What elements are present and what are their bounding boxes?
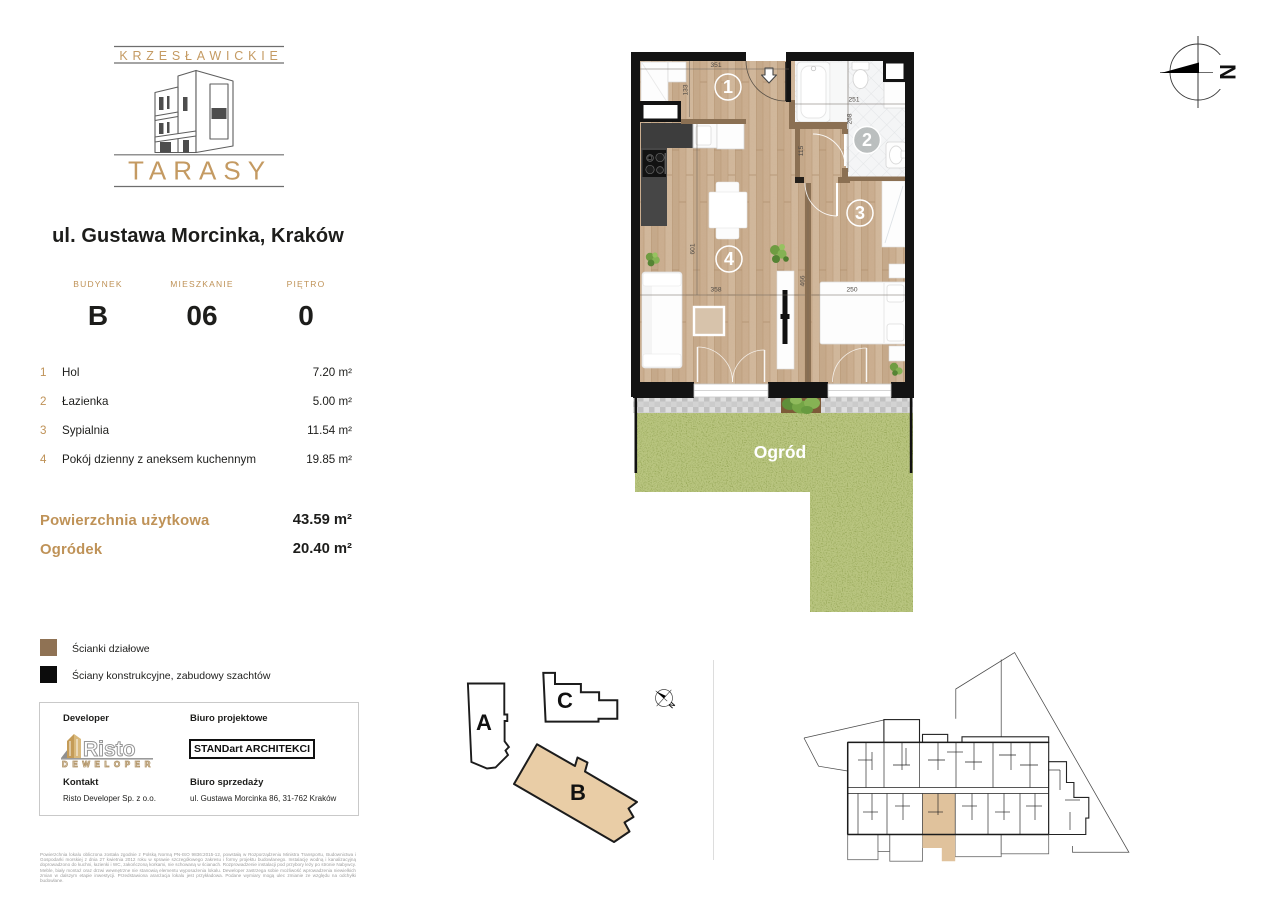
svg-text:N: N	[667, 700, 677, 710]
svg-text:251: 251	[848, 97, 859, 104]
svg-text:KRZESŁAWICKIE: KRZESŁAWICKIE	[119, 49, 282, 63]
svg-text:4: 4	[724, 249, 734, 269]
svg-text:1: 1	[723, 77, 733, 97]
svg-text:A: A	[476, 710, 492, 735]
svg-text:C: C	[557, 688, 573, 713]
svg-text:Risto: Risto	[83, 738, 136, 761]
svg-text:351: 351	[710, 62, 721, 69]
svg-text:3: 3	[855, 203, 865, 223]
svg-text:B: B	[570, 780, 586, 805]
svg-text:358: 358	[710, 287, 721, 294]
svg-text:Ogród: Ogród	[754, 442, 807, 462]
svg-text:2: 2	[862, 130, 872, 150]
svg-text:466: 466	[800, 275, 807, 286]
svg-text:115: 115	[798, 145, 805, 156]
svg-text:250: 250	[846, 287, 857, 294]
svg-text:DEWELOPER: DEWELOPER	[62, 760, 155, 768]
svg-text:TARASY: TARASY	[128, 156, 272, 186]
svg-text:N: N	[1215, 64, 1240, 80]
svg-text:133: 133	[683, 84, 690, 95]
svg-text:601: 601	[690, 243, 697, 254]
svg-text:268: 268	[847, 113, 854, 124]
